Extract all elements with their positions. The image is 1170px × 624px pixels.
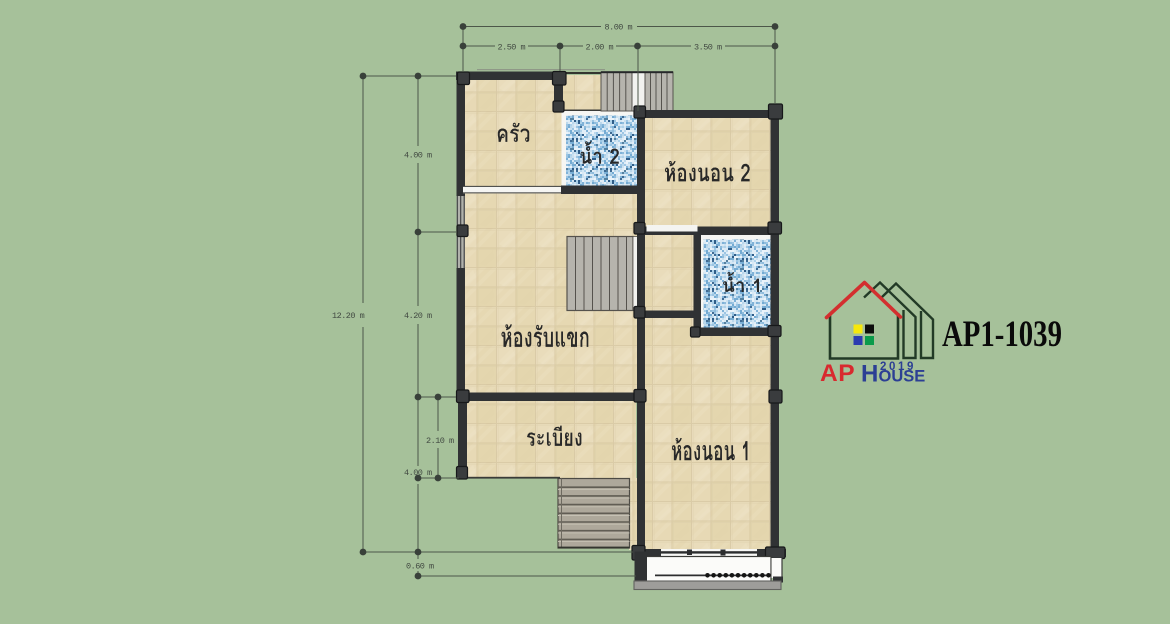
svg-text:3.50 m: 3.50 m [694, 43, 722, 53]
svg-text:AP: AP [820, 360, 855, 387]
svg-text:2019: 2019 [880, 361, 916, 373]
svg-text:8.00 m: 8.00 m [605, 23, 633, 33]
svg-text:4.00 m: 4.00 m [404, 151, 432, 161]
svg-text:2.50 m: 2.50 m [498, 43, 526, 53]
svg-text:2.10 m: 2.10 m [426, 436, 454, 446]
svg-text:0.60 m: 0.60 m [406, 562, 434, 572]
svg-text:H: H [861, 361, 878, 388]
svg-text:4.20 m: 4.20 m [404, 311, 432, 321]
svg-text:AP1-1039: AP1-1039 [942, 314, 1062, 355]
svg-text:12.20 m: 12.20 m [332, 311, 365, 321]
svg-text:2.00 m: 2.00 m [586, 43, 614, 53]
svg-text:4.00 m: 4.00 m [404, 468, 432, 478]
